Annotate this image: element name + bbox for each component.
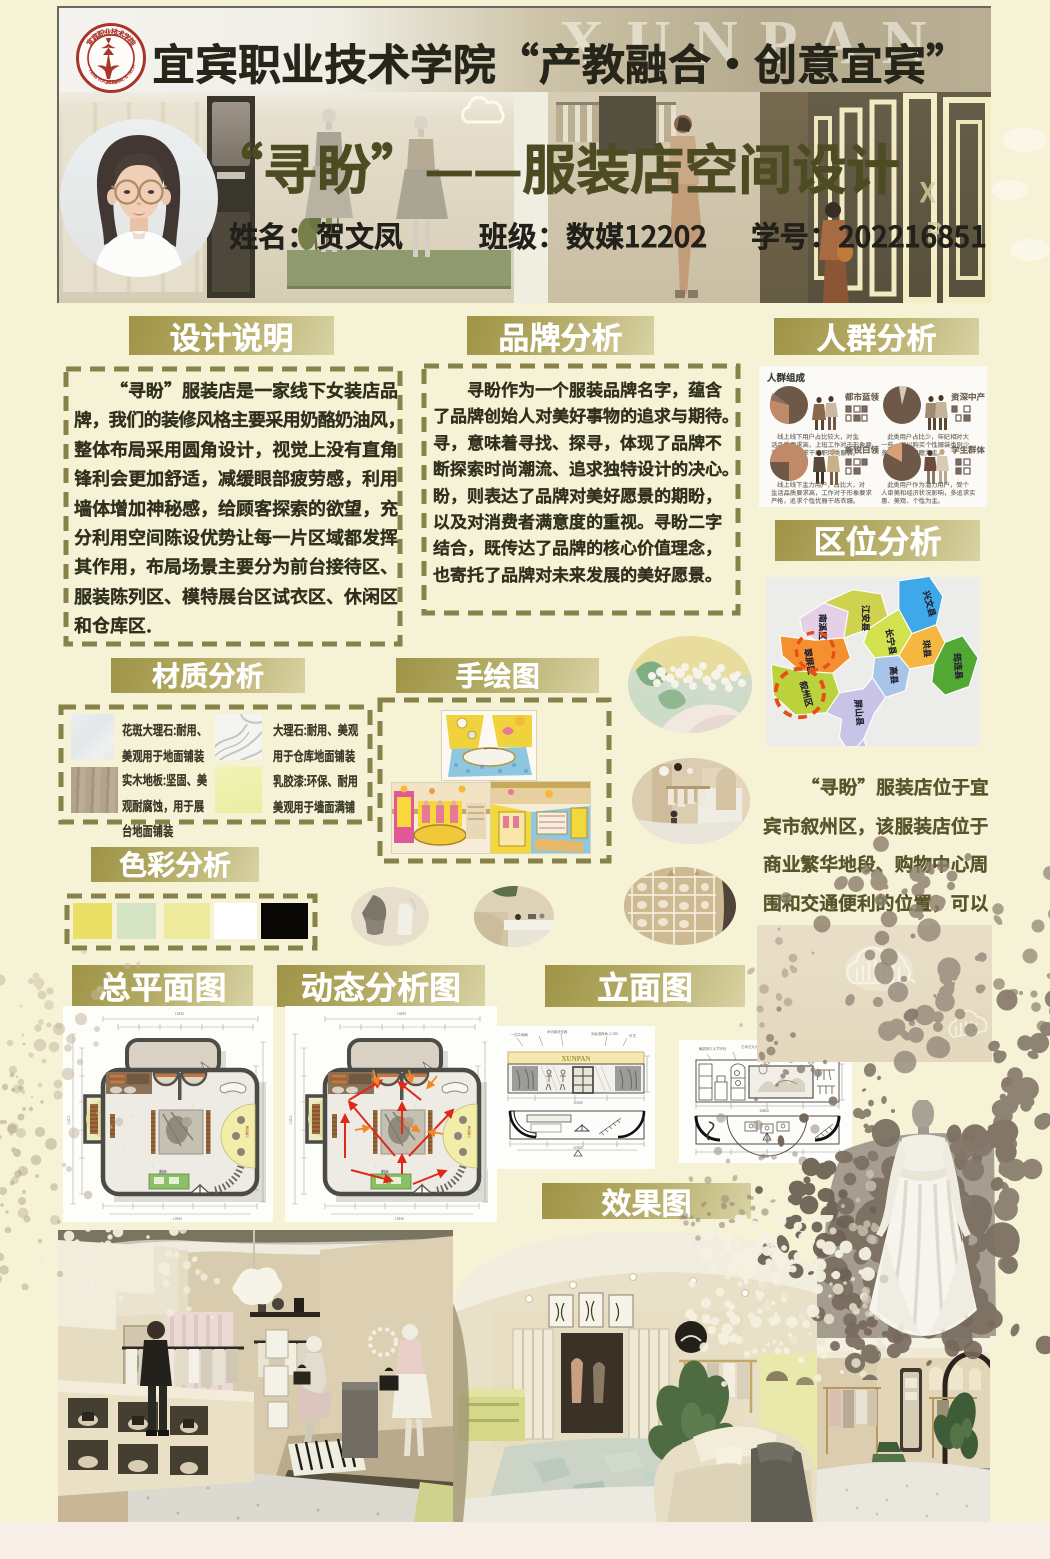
svg-text:13840: 13840 — [174, 1011, 184, 1016]
svg-text:木饰面造型板: 木饰面造型板 — [546, 1029, 568, 1034]
svg-text:新锐白领: 新锐白领 — [845, 444, 880, 456]
svg-text:14800: 14800 — [759, 1154, 769, 1159]
svg-text:14211: 14211 — [66, 1115, 71, 1125]
svg-text:筠连县: 筠连县 — [951, 652, 966, 681]
svg-text:严格，追求个性优雅干练衣服。: 严格，追求个性优雅干练衣服。 — [771, 496, 859, 505]
svg-text:都市蓝领: 都市蓝领 — [844, 391, 880, 403]
svg-text:资深中产: 资深中产 — [950, 391, 986, 403]
svg-text:艺术亚克力: 艺术亚克力 — [741, 1044, 759, 1049]
svg-text:14500: 14500 — [573, 1100, 583, 1105]
svg-text:服装展示: 服装展示 — [467, 1125, 471, 1138]
svg-text:13840: 13840 — [172, 1216, 182, 1221]
svg-text:13840: 13840 — [394, 1216, 404, 1221]
svg-text:前台: 前台 — [381, 1169, 389, 1175]
svg-text:13840: 13840 — [396, 1011, 406, 1016]
svg-text:吊顶: 吊顶 — [629, 1033, 636, 1038]
svg-text:14211: 14211 — [288, 1115, 293, 1125]
svg-text:前台: 前台 — [159, 1169, 167, 1175]
svg-text:明装筒灯上下环绕: 明装筒灯上下环绕 — [699, 1046, 727, 1051]
svg-text:14500: 14500 — [573, 1145, 583, 1150]
svg-text:学生群体: 学生群体 — [951, 444, 986, 456]
svg-text:珙县: 珙县 — [920, 638, 935, 658]
svg-text:惠、美观、个性为主。: 惠、美观、个性为主。 — [881, 496, 944, 505]
svg-text:乳胶漆白色,1:150: 乳胶漆白色,1:150 — [591, 1031, 618, 1036]
svg-text:服装展示: 服装展示 — [245, 1125, 249, 1138]
svg-text:南溪区: 南溪区 — [817, 614, 830, 641]
svg-text:一层立面图: 一层立面图 — [511, 1032, 529, 1037]
svg-text:屏山县: 屏山县 — [852, 698, 867, 727]
svg-text:江安县: 江安县 — [860, 605, 873, 632]
svg-text:14800: 14800 — [759, 1108, 769, 1113]
svg-text:XUNPAN: XUNPAN — [561, 1055, 590, 1063]
svg-text:高县: 高县 — [887, 666, 902, 685]
svg-text:人群组成: 人群组成 — [766, 370, 806, 384]
